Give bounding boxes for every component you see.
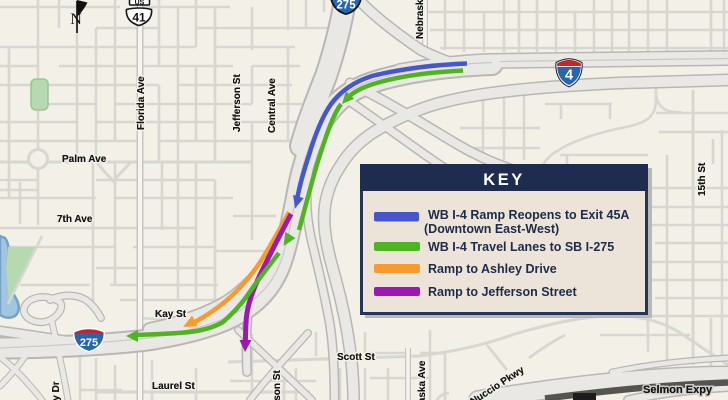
svg-text:Kay St: Kay St [155, 309, 187, 320]
svg-text:Central Ave: Central Ave [267, 78, 278, 133]
svg-text:275: 275 [336, 0, 356, 12]
svg-text:Jefferson St: Jefferson St [232, 74, 243, 132]
svg-text:275: 275 [80, 337, 98, 349]
svg-text:Ramp to Jefferson Street: Ramp to Jefferson Street [428, 285, 577, 299]
svg-text:(Downtown East-West): (Downtown East-West) [424, 222, 559, 236]
svg-text:7th Ave: 7th Ave [57, 214, 93, 225]
svg-text:4: 4 [565, 68, 573, 84]
svg-text:Selmon Expy: Selmon Expy [643, 384, 713, 396]
svg-text:Nebraska Ave: Nebraska Ave [415, 0, 426, 39]
svg-text:WB I-4 Travel Lanes to SB I-27: WB I-4 Travel Lanes to SB I-275 [428, 240, 614, 254]
svg-text:Palm Ave: Palm Ave [62, 154, 107, 165]
svg-text:41: 41 [132, 11, 146, 25]
svg-text:Scott St: Scott St [337, 352, 375, 363]
svg-text:KEY: KEY [483, 171, 524, 189]
svg-text:N: N [70, 11, 82, 28]
svg-text:Nebraska Ave: Nebraska Ave [417, 360, 428, 400]
svg-text:Ashley Dr: Ashley Dr [51, 381, 62, 400]
svg-text:Jefferson St: Jefferson St [272, 370, 283, 400]
svg-text:Florida Ave: Florida Ave [136, 76, 147, 130]
svg-text:WB I-4 Ramp Reopens to Exit 45: WB I-4 Ramp Reopens to Exit 45A [428, 208, 629, 222]
svg-text:US: US [135, 0, 145, 7]
svg-text:15th St: 15th St [697, 162, 708, 196]
svg-text:Laurel St: Laurel St [152, 381, 195, 392]
svg-text:Ramp to Ashley Drive: Ramp to Ashley Drive [428, 262, 557, 276]
